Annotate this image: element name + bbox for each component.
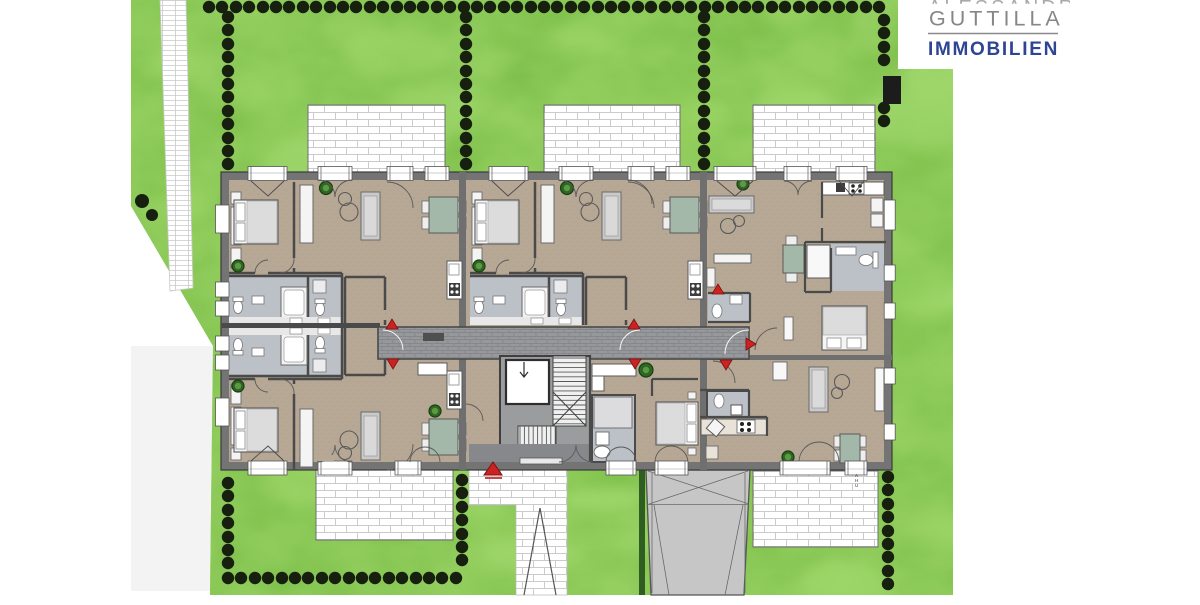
svg-text:IMMOBILIEN: IMMOBILIEN — [928, 39, 1059, 60]
svg-text:GUTTILLA: GUTTILLA — [929, 7, 1064, 31]
svg-text:U: U — [855, 483, 858, 488]
